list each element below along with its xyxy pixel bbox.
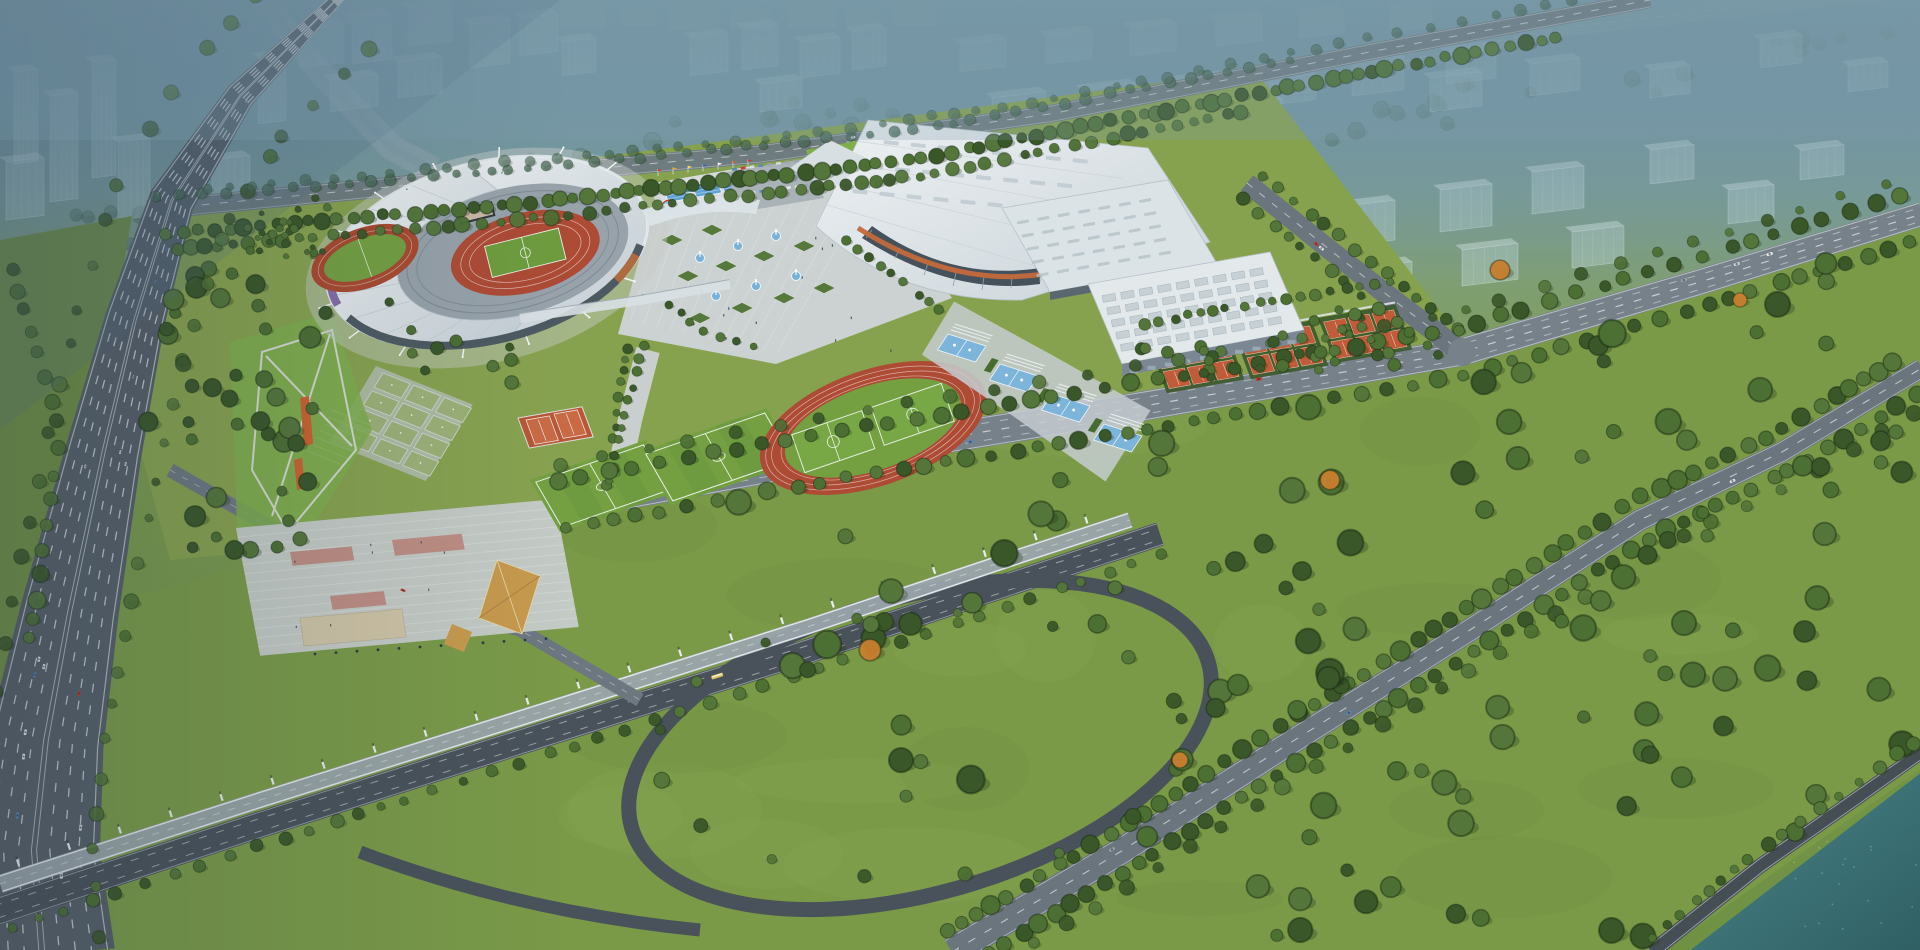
top-fog [0, 0, 1920, 140]
aerial-rendering: Aerial bird's-eye architectural renderin… [0, 0, 1920, 950]
rendering-stage: Aerial bird's-eye architectural renderin… [0, 0, 1920, 950]
color-grade-overlays [0, 0, 1920, 950]
